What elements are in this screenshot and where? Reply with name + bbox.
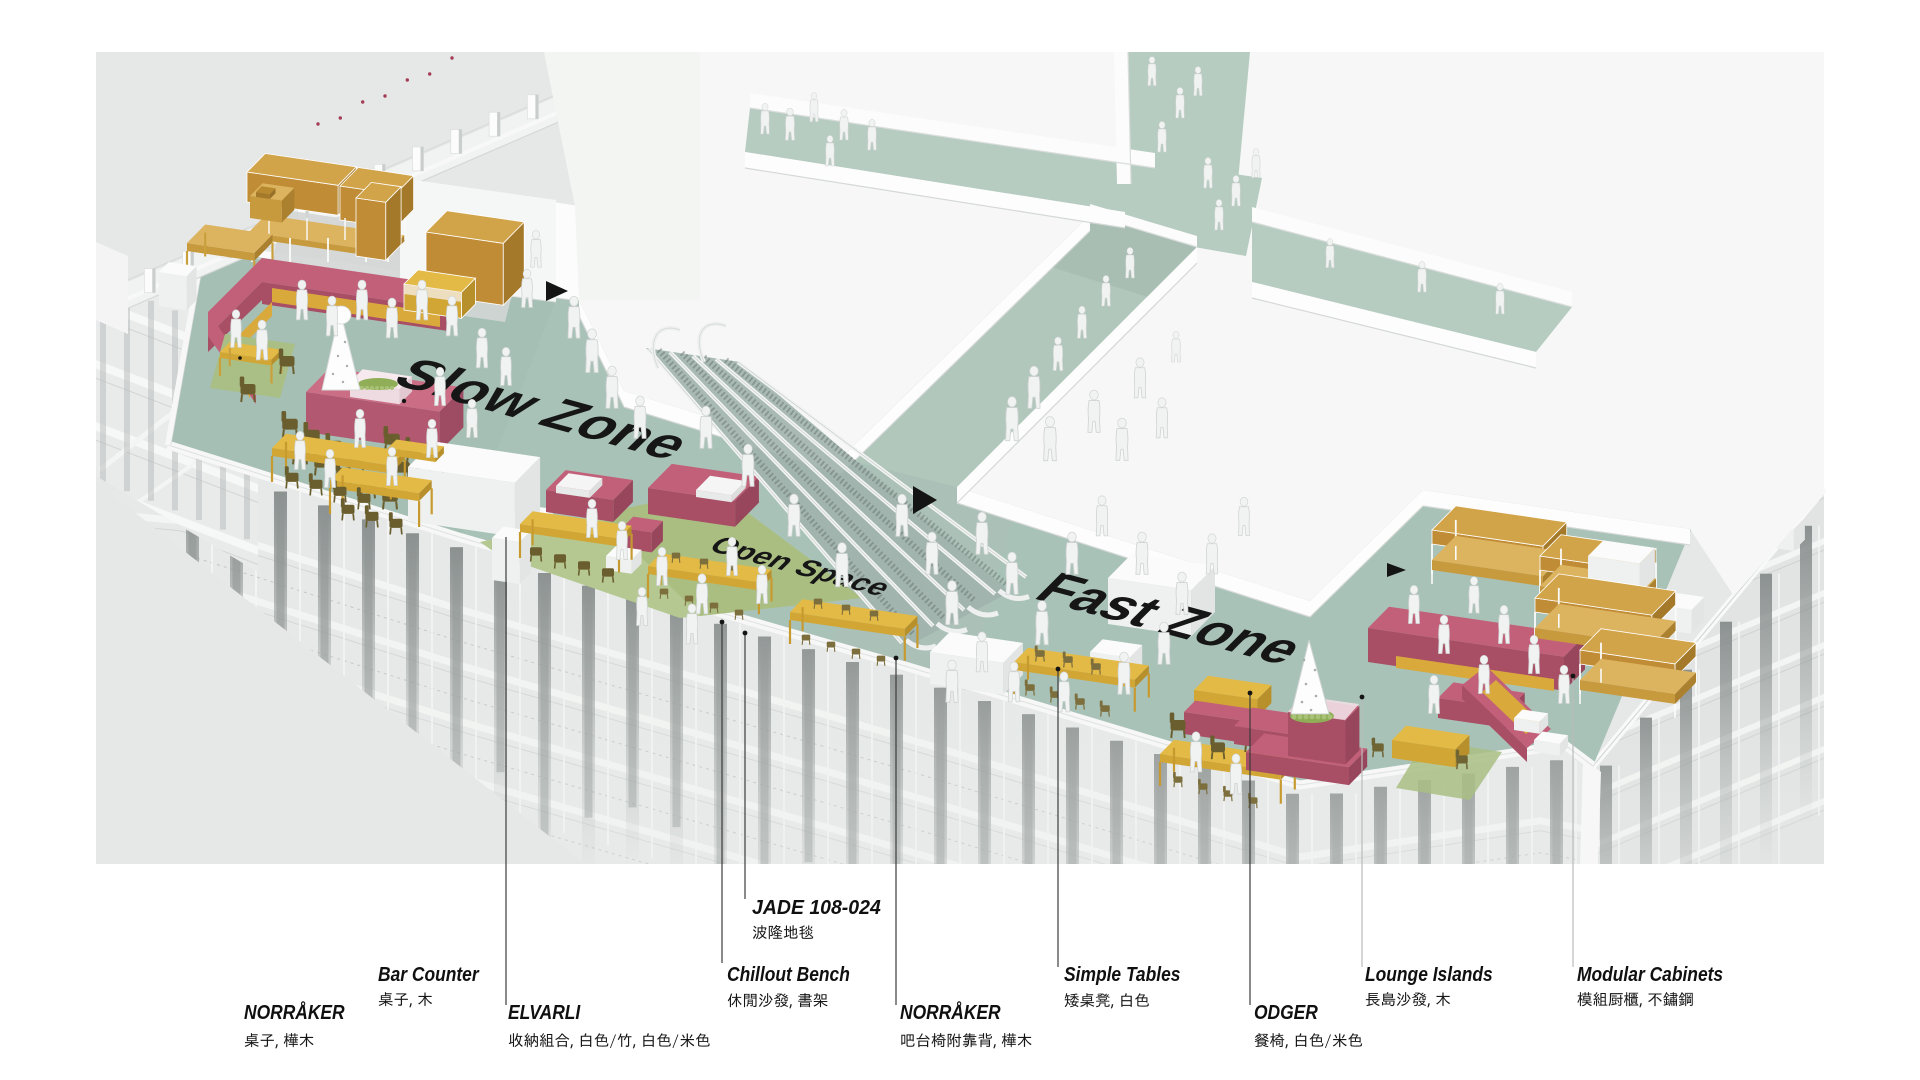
svg-text:ELVARLI: ELVARLI	[508, 1002, 581, 1025]
svg-text:Chillout Bench: Chillout Bench	[727, 964, 850, 987]
svg-text:Simple Tables: Simple Tables	[1064, 964, 1180, 987]
svg-text:Modular Cabinets: Modular Cabinets	[1577, 964, 1723, 987]
svg-text:Lounge Islands: Lounge Islands	[1365, 964, 1493, 987]
svg-text:ODGER: ODGER	[1254, 1002, 1318, 1025]
svg-text:NORRÅKER: NORRÅKER	[244, 1002, 345, 1025]
svg-text:Bar Counter: Bar Counter	[378, 964, 480, 987]
svg-text:JADE 108-024: JADE 108-024	[752, 897, 881, 920]
svg-text:NORRÅKER: NORRÅKER	[900, 1002, 1001, 1025]
